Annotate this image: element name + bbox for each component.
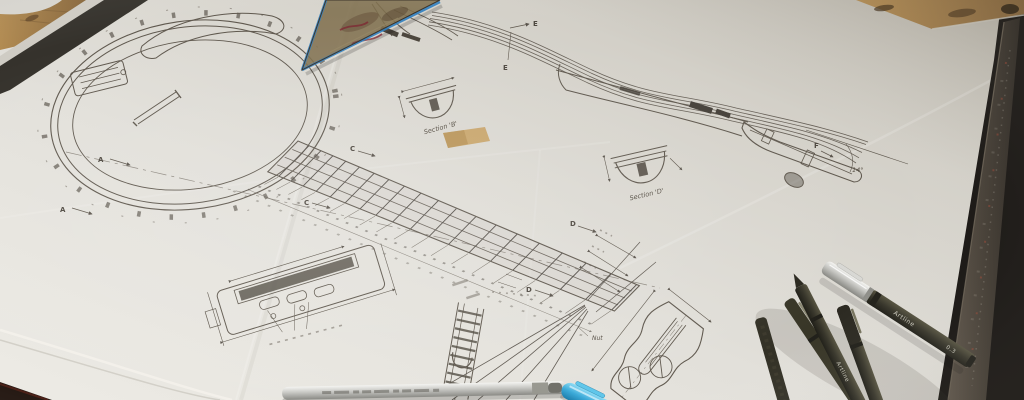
nut-label: Nut — [592, 335, 603, 342]
ref-letter: D — [570, 220, 576, 228]
photo-canvas: A A C C D D — [0, 0, 1024, 400]
ref-letter: E — [533, 20, 538, 28]
ref-letter: C — [304, 199, 309, 207]
photo-banjo-blueprint: A A C C D D — [0, 0, 1024, 400]
ref-letter: A — [60, 206, 66, 214]
ref-letter: C — [350, 145, 355, 153]
ref-letter: F — [814, 142, 819, 150]
ref-letter: D — [526, 286, 532, 294]
peghead-angle-label: 14° — [852, 166, 864, 174]
ref-letter: A — [98, 156, 104, 164]
ref-letter: E — [503, 64, 508, 72]
paper-sheet — [0, 0, 1024, 400]
